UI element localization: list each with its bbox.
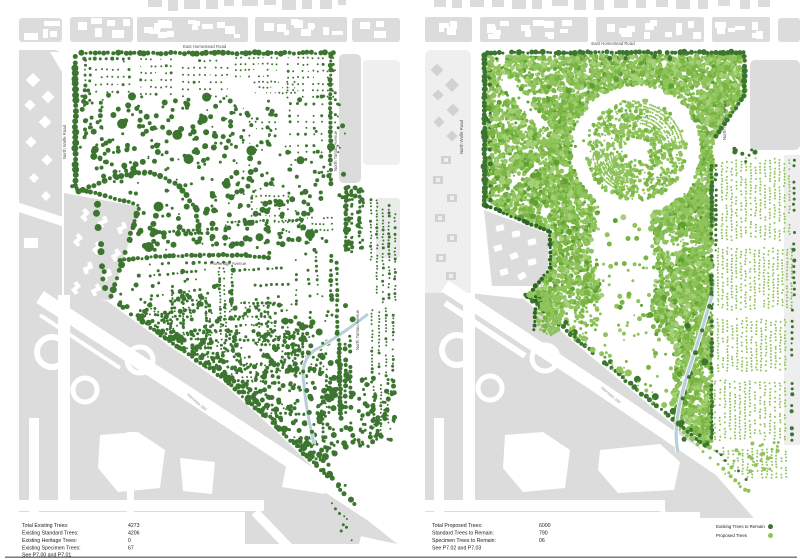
svg-text:North Tantau Avenue: North Tantau Avenue [722,99,727,140]
svg-text:Specimen Trees to Remain:: Specimen Trees to Remain: [432,538,496,544]
svg-text:East Homestead Road: East Homestead Road [591,41,635,46]
svg-text:Total Proposed Trees:: Total Proposed Trees: [432,523,482,529]
svg-text:North Wolfe Road: North Wolfe Road [459,119,464,154]
svg-text:06: 06 [539,538,545,544]
svg-text:Standard Trees to Remain:: Standard Trees to Remain: [432,531,494,537]
svg-text:Existing Standard Trees:: Existing Standard Trees: [22,531,79,537]
svg-text:Pruneridge Avenue: Pruneridge Avenue [210,261,247,266]
svg-text:North Tantau Avenue: North Tantau Avenue [355,309,360,350]
svg-text:4206: 4206 [128,531,140,537]
svg-text:Existing Heritage Trees:: Existing Heritage Trees: [22,538,77,544]
svg-text:North Wolfe Road: North Wolfe Road [62,124,67,159]
svg-text:See P7.02 and P7.03: See P7.02 and P7.03 [432,546,481,552]
svg-text:East Homestead Road: East Homestead Road [183,44,227,49]
svg-text:Total Existing Trees:: Total Existing Trees: [22,523,68,529]
svg-text:Existing Specimen Trees:: Existing Specimen Trees: [22,546,81,552]
svg-text:67: 67 [128,546,134,552]
svg-text:North Tantau Avenue: North Tantau Avenue [333,130,338,171]
svg-text:6000: 6000 [539,523,551,529]
svg-text:Existing Trees to Remain: Existing Trees to Remain [716,524,765,529]
svg-text:Proposed Trees: Proposed Trees [716,533,748,538]
svg-text:0: 0 [128,538,131,544]
svg-text:4273: 4273 [128,523,140,529]
svg-text:790: 790 [539,531,548,537]
